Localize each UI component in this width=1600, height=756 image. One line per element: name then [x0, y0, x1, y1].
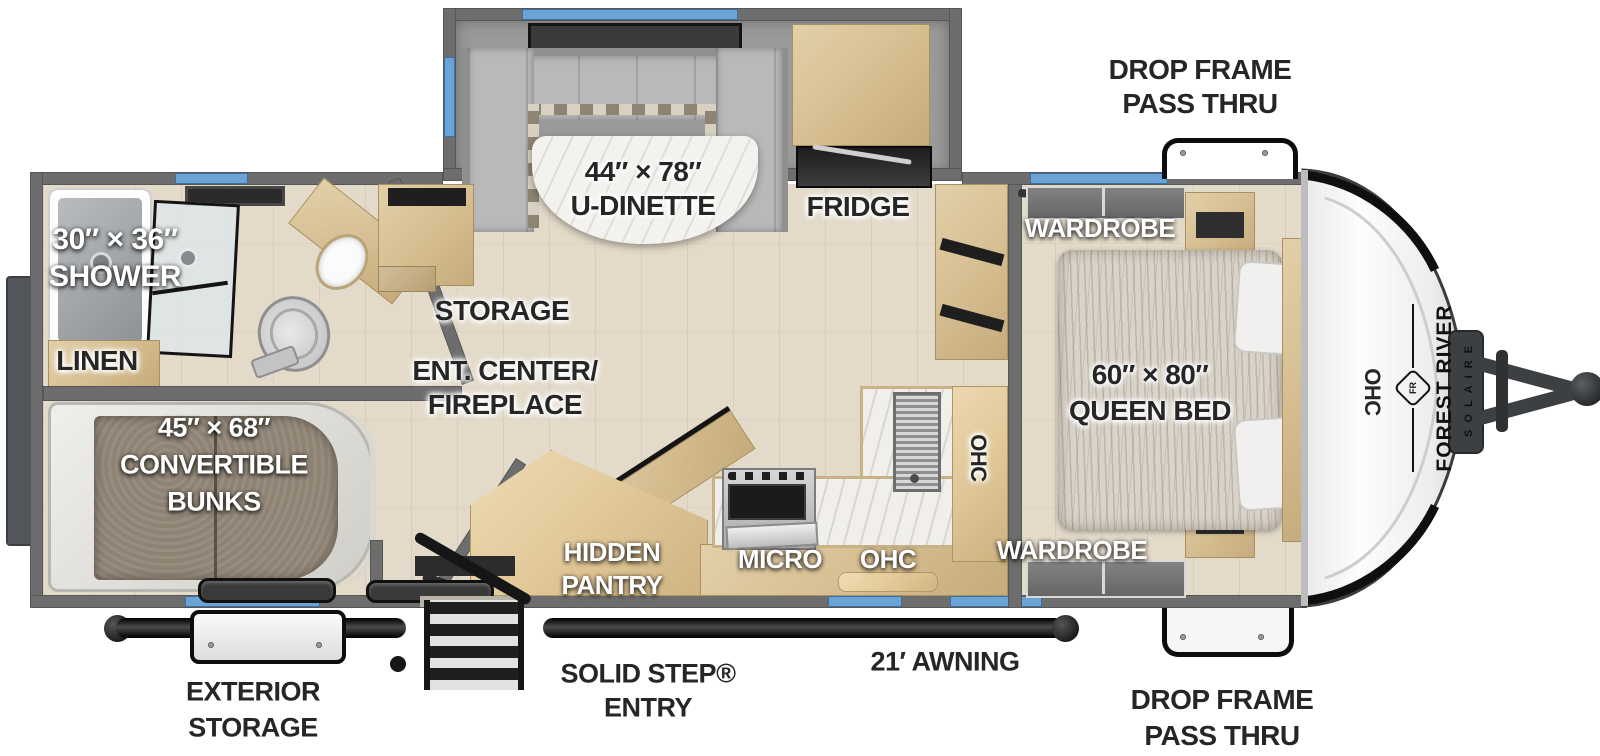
label-shower-name: SHOWER — [49, 262, 181, 292]
label-shower-size: 30″ × 36″ — [52, 225, 177, 255]
pantry-cabinet — [935, 184, 1008, 360]
hitch-jack-pin — [1496, 350, 1508, 432]
brand-rule-left — [1412, 408, 1414, 472]
label-storage: STORAGE — [435, 297, 569, 325]
label-dinette-name: U-DINETTE — [571, 192, 716, 220]
label-exterior-storage-line1: EXTERIOR — [186, 679, 320, 706]
storage-door-screw-right — [316, 642, 322, 648]
label-queen-size: 60″ × 80″ — [1092, 361, 1209, 389]
slide-window-top — [522, 9, 738, 20]
label-ohc-front: OHC — [1361, 368, 1383, 415]
label-ohc-kitchen-upper: OHC — [967, 434, 989, 481]
brand-lockup: FR FOREST RIVER SOLAIRE — [1399, 304, 1475, 472]
label-bunks-size: 45″ × 68″ — [158, 415, 270, 442]
wall-rear — [30, 172, 43, 608]
entry-steps — [424, 600, 524, 690]
wardrobe-top-divider — [1102, 186, 1105, 216]
label-hidden-pantry-line2: PANTRY — [562, 572, 663, 598]
label-awning: 21′ AWNING — [871, 649, 1020, 676]
kitchen-tray — [838, 572, 938, 592]
nightstand-top-slot — [1196, 212, 1244, 238]
awning-bar-right — [543, 618, 1065, 638]
label-exterior-storage-line2: STORAGE — [188, 715, 318, 742]
label-bunks-line1: CONVERTIBLE — [120, 452, 308, 479]
label-ohc-kitchen-lower: OHC — [860, 546, 916, 572]
stove-cooktop — [728, 484, 806, 520]
storage-cabinet-tv — [388, 188, 466, 206]
label-queen-name: QUEEN BED — [1069, 397, 1231, 425]
hatch-top-screw-right — [1262, 150, 1268, 156]
storage-cabinet-shelf — [378, 266, 436, 292]
brand-rule-right — [1412, 304, 1414, 368]
hatch-bottom-screw-left — [1180, 634, 1186, 640]
slide-window-left — [444, 57, 455, 137]
brand-model: SOLAIRE — [1463, 339, 1475, 437]
fridge-cabinet — [792, 24, 930, 146]
window-top-bath — [175, 173, 248, 184]
hatch-top-screw-left — [1180, 150, 1186, 156]
label-drop-frame-top-line1: DROP FRAME — [1109, 56, 1292, 84]
label-wardrobe-top: WARDROBE — [1025, 215, 1176, 241]
exterior-storage-door — [190, 610, 346, 664]
label-bunks-line2: BUNKS — [167, 489, 261, 516]
entry-steps-rail-cap — [390, 656, 406, 672]
label-fridge: FRIDGE — [807, 193, 910, 221]
passthru-hatch-top — [1162, 138, 1298, 179]
floorplan-canvas: FR FOREST RIVER SOLAIRE DROP FRAME PASS … — [0, 0, 1600, 756]
label-linen: LINEN — [56, 347, 138, 375]
hatch-bottom-screw-right — [1258, 634, 1264, 640]
passthru-hatch-bottom — [1162, 608, 1294, 657]
hitch-coupler-ball — [1570, 372, 1600, 406]
label-ent-center-line1: ENT. CENTER/ — [412, 357, 597, 385]
label-ent-center-line2: FIREPLACE — [428, 391, 582, 419]
wardrobe-bottom-doors — [1026, 560, 1186, 598]
wardrobe-bottom-divider — [1102, 560, 1105, 594]
brand-name: FOREST RIVER — [1433, 304, 1457, 471]
brand-logo-row: FR — [1399, 304, 1427, 472]
bunks-step-tray — [198, 578, 336, 603]
awning-endcap-right — [1052, 615, 1079, 642]
window-top-bedroom — [1030, 173, 1168, 184]
storage-door-screw-left — [208, 642, 214, 648]
label-dinette-size: 44″ × 78″ — [585, 158, 702, 186]
shower-door-drain — [178, 248, 198, 268]
label-drop-frame-bottom-line2: PASS THRU — [1144, 722, 1299, 750]
slide-wall-right — [949, 8, 962, 180]
forest-river-logo-icon: FR — [1393, 368, 1433, 408]
label-drop-frame-bottom-line1: DROP FRAME — [1131, 686, 1314, 714]
dinette-trim-top — [528, 104, 716, 115]
label-micro: MICRO — [738, 546, 822, 572]
window-bottom-kitchen — [828, 596, 902, 607]
kitchen-faucet — [910, 474, 919, 483]
label-drop-frame-top-line2: PASS THRU — [1122, 90, 1277, 118]
label-wardrobe-bottom: WARDROBE — [997, 537, 1148, 563]
wall-bath-bunks — [43, 386, 462, 401]
label-hidden-pantry-line1: HIDDEN — [564, 539, 661, 565]
label-solid-step-line1: SOLID STEP® — [561, 661, 736, 688]
stove-knobs — [728, 472, 806, 480]
label-solid-step-line2: ENTRY — [604, 695, 692, 722]
